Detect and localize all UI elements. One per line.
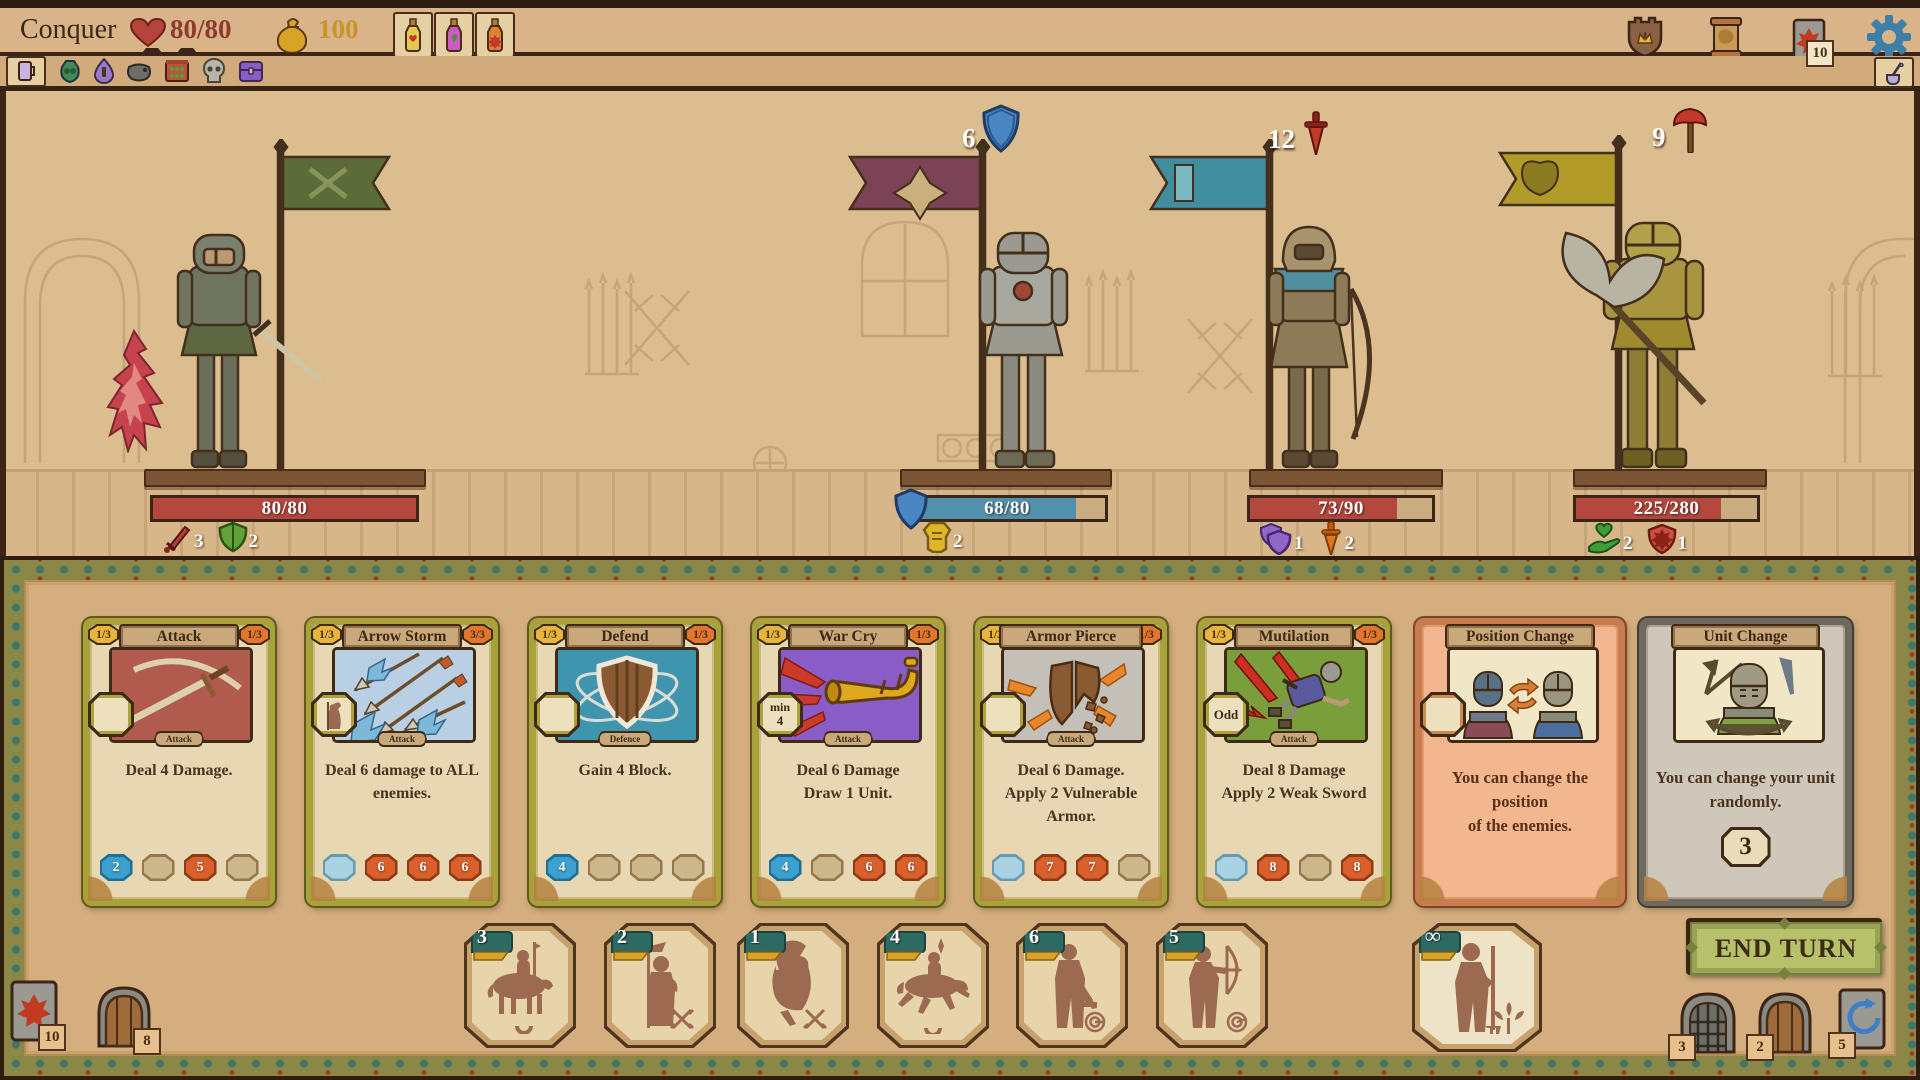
card-title: Attack	[119, 624, 239, 649]
cost-slot	[142, 854, 175, 881]
damage-potion-icon	[484, 18, 506, 52]
card-corner-flourish	[1128, 867, 1162, 901]
card-type: Attack	[823, 731, 873, 747]
card-corner-flourish	[1351, 867, 1385, 901]
card-type: Attack	[1046, 731, 1096, 747]
unit-token-sword-cavalry[interactable]: 4	[877, 923, 989, 1048]
unit-heavy-axe-knight[interactable]	[1478, 135, 1768, 469]
status-regen: 2	[1586, 521, 1633, 555]
card-title: Armor Pierce	[999, 624, 1143, 649]
intent-value: 12	[1268, 124, 1295, 155]
card-mutilation[interactable]: 1/3 1/3 Mutilation Att	[1198, 618, 1390, 906]
card-condition-slot	[88, 692, 134, 737]
card-arrow-storm[interactable]: 1/3 3/3 Arrow Storm Attack	[306, 618, 498, 906]
orange-dagger-icon	[1318, 521, 1344, 555]
ladle-icon	[1883, 61, 1905, 85]
settings-gear-icon[interactable]	[1866, 14, 1912, 60]
frame-edge	[0, 91, 6, 556]
unit-requirement-icon	[324, 700, 344, 730]
tankard-slot[interactable]	[6, 56, 46, 87]
door-button-right[interactable]: 2	[1756, 990, 1814, 1059]
uses-left-badge: 3	[1721, 827, 1771, 867]
status-armor: 2	[922, 521, 963, 553]
card-text: Deal 6 DamageDraw 1 Unit.	[760, 759, 936, 805]
card-corner-flourish	[980, 867, 1014, 901]
hp-value: 80/80	[153, 498, 416, 519]
axe-icon	[1670, 107, 1710, 153]
health-heart-icon	[130, 18, 166, 48]
intent-attack: 12	[1268, 111, 1333, 155]
card-text: Deal 6 Damage.Apply 2 Vulnerable Armor.	[983, 759, 1159, 829]
card-title: Defend	[565, 624, 685, 649]
green-shield-icon	[218, 521, 248, 553]
card-corner-flourish	[905, 867, 939, 901]
cost-slot: 6	[853, 854, 886, 881]
card-text: Deal 4 Damage.	[91, 759, 267, 782]
elixir-drop-icon[interactable]	[94, 58, 114, 84]
cost-slot: 5	[184, 854, 217, 881]
dagger-icon	[1299, 111, 1333, 155]
unit-token-crossbowman[interactable]: 6	[1016, 923, 1128, 1048]
top-bar: Conquer 80/80 100	[0, 8, 1920, 56]
card-text: Gain 4 Block.	[537, 759, 713, 782]
unit-swap-art-icon	[1676, 650, 1822, 740]
status-thorns: 1	[1647, 523, 1688, 555]
card-count-badge: 1/3	[1354, 624, 1385, 645]
gold-pouch-icon	[276, 15, 310, 53]
cost-slot	[630, 854, 663, 881]
end-turn-label: END TURN	[1715, 934, 1858, 964]
cost-slot	[588, 854, 621, 881]
card-corner-flourish	[757, 867, 791, 901]
card-corner-flourish	[1203, 867, 1237, 901]
status-block: 2	[218, 521, 259, 553]
herb-bag-icon[interactable]	[58, 58, 82, 84]
redraw-button[interactable]: 5	[1838, 988, 1886, 1057]
card-condition-slot: Odd	[1203, 692, 1249, 737]
card-corner-flourish	[682, 867, 716, 901]
card-count-badge: 1/3	[311, 624, 342, 645]
gate-button[interactable]: 3	[1678, 990, 1738, 1059]
unit-token-spearman[interactable]: 2	[604, 923, 716, 1048]
card-corner-flourish	[1813, 867, 1847, 901]
card-count-badge: 1/3	[685, 624, 716, 645]
card-type: Defence	[598, 731, 652, 747]
card-count-badge: 1/3	[757, 624, 788, 645]
card-corner-flourish	[459, 867, 493, 901]
card-corner-flourish	[1420, 867, 1454, 901]
cost-slot: 7	[1034, 854, 1067, 881]
swap-knights-art-icon	[1450, 650, 1596, 740]
card-count-badge: 1/3	[534, 624, 565, 645]
card-count-badge: 1/3	[239, 624, 270, 645]
card-text: You can change your unitrandomly.	[1647, 766, 1844, 814]
status-row-unit3: 1 2	[1259, 521, 1354, 555]
status-value: 2	[249, 531, 259, 553]
card-attack[interactable]: 1/3 1/3 Attack Attack Deal 4 Damage. 2 5	[83, 618, 275, 906]
consumables-bar	[0, 56, 1920, 91]
hp-bar-unit3: 73/90	[1247, 495, 1435, 522]
top-dark-strip	[0, 0, 1920, 8]
cauldron-icon[interactable]	[126, 59, 152, 83]
card-corner-flourish	[534, 867, 568, 901]
status-row-unit1: 3 2	[163, 521, 258, 553]
scroll-icon[interactable]	[1709, 16, 1743, 60]
unit-platform	[1573, 469, 1767, 487]
unit-token-shield-knight[interactable]: 1	[737, 923, 849, 1048]
card-war-cry[interactable]: 1/3 1/3 War Cry Attack min 4 Deal 6	[752, 618, 944, 906]
card-title: Mutilation	[1234, 624, 1354, 649]
card-unit-requirement-slot	[311, 692, 357, 737]
deck-count-badge: 10	[1806, 40, 1834, 67]
magic-potion-icon	[443, 18, 465, 52]
game-root: Conquer 80/80 100	[0, 0, 1920, 1080]
unit-platform	[144, 469, 426, 487]
armor-icon	[922, 521, 952, 553]
unit-plate-knight[interactable]	[840, 139, 1110, 469]
card-condition-slot	[534, 692, 580, 737]
door-count-badge: 8	[133, 1028, 161, 1055]
card-corner-flourish	[236, 867, 270, 901]
card-type: Attack	[377, 731, 427, 747]
card-text: You can change the positionof the enemie…	[1423, 766, 1617, 838]
card-type: Attack	[1269, 731, 1319, 747]
unit-hooded-archer[interactable]	[1145, 139, 1415, 469]
card-text: Deal 8 DamageApply 2 Weak Sword	[1206, 759, 1382, 805]
card-count-badge: 1/3	[908, 624, 939, 645]
card-title: Position Change	[1445, 624, 1595, 649]
card-position-change[interactable]: Position Change	[1415, 618, 1625, 906]
player-hp: 80/80	[170, 14, 232, 45]
card-title: Unit Change	[1671, 624, 1820, 649]
skull-icon[interactable]	[202, 58, 226, 84]
status-row-unit2: 2	[922, 521, 963, 553]
potion-shelf-icon[interactable]	[164, 58, 190, 84]
unit-token-archer[interactable]: 5	[1156, 923, 1268, 1048]
status-value: 2	[953, 531, 963, 553]
status-value: 1	[1678, 533, 1688, 555]
card-condition-slot: min 4	[757, 692, 803, 737]
card-title: War Cry	[788, 624, 908, 649]
unit-swordsman[interactable]	[150, 139, 410, 469]
status-value: 1	[1294, 533, 1304, 555]
cost-slot: 6	[407, 854, 440, 881]
unit-token-peasant-infinite[interactable]: ∞	[1412, 923, 1542, 1052]
status-value: 3	[194, 531, 204, 553]
card-armor-pierce[interactable]: 1/3 1/3 Armor Pierce Attack Deal 6 Damag…	[975, 618, 1167, 906]
intent-block: 6	[962, 104, 1022, 154]
status-row-unit4: 2 1	[1586, 521, 1687, 555]
page-title: Conquer	[20, 14, 116, 46]
crown-shield-icon[interactable]	[1626, 16, 1664, 58]
card-art	[1447, 647, 1599, 743]
magic-potion-slot[interactable]	[434, 12, 474, 58]
chest-icon[interactable]	[238, 59, 264, 83]
card-condition-slot	[980, 692, 1026, 737]
frame-edge	[1914, 91, 1920, 556]
cost-slot: 8	[1257, 854, 1290, 881]
status-value: 2	[1345, 533, 1355, 555]
card-art	[1673, 647, 1825, 743]
status-sword: 3	[163, 523, 204, 553]
player-gold: 100	[318, 14, 359, 45]
draw-deck-button[interactable]: 10	[10, 980, 58, 1049]
cost-slot: 6	[365, 854, 398, 881]
end-turn-button[interactable]: END TURN	[1686, 918, 1882, 975]
unit-token-lancer[interactable]: 3	[464, 923, 576, 1048]
sword-icon	[163, 523, 193, 553]
health-potion-slot[interactable]	[393, 12, 433, 58]
purple-shield-icon	[1259, 523, 1293, 555]
door-button-left[interactable]: 8	[95, 984, 153, 1053]
hp-bar-unit4: 225/280	[1573, 495, 1760, 522]
red-shield-icon	[1647, 523, 1677, 555]
card-corner-flourish	[311, 867, 345, 901]
hp-bar-unit2: 68/80	[906, 495, 1108, 522]
draw-count-badge: 10	[38, 1024, 66, 1051]
cost-slot	[1299, 854, 1332, 881]
card-unit-change[interactable]: Unit Change You can change your unitrand…	[1639, 618, 1852, 906]
intent-value: 6	[962, 123, 976, 154]
card-title: Arrow Storm	[342, 624, 462, 649]
door-count-badge: 2	[1746, 1034, 1774, 1061]
unit-platform	[1249, 469, 1443, 487]
ladle-slot[interactable]	[1874, 57, 1914, 88]
hp-value: 68/80	[909, 498, 1105, 519]
block-shield-icon	[980, 104, 1022, 154]
tankard-icon	[17, 60, 35, 82]
hp-value: 73/90	[1250, 498, 1432, 519]
status-value: 2	[1623, 533, 1633, 555]
consumable-items	[6, 57, 264, 85]
card-corner-flourish	[1644, 867, 1678, 901]
intent-value: 9	[1652, 122, 1666, 153]
redraw-count-badge: 5	[1828, 1032, 1856, 1059]
unit-platform	[900, 469, 1112, 487]
cost-slot	[811, 854, 844, 881]
hp-value: 225/280	[1576, 498, 1757, 519]
damage-potion-slot[interactable]	[475, 12, 515, 58]
gate-count-badge: 3	[1668, 1034, 1696, 1061]
card-corner-flourish	[1586, 867, 1620, 901]
battlefield: 6 12 9 80/80	[0, 91, 1920, 556]
card-type: Attack	[154, 731, 204, 747]
status-shield: 1	[1259, 523, 1304, 555]
hp-bar-unit1: 80/80	[150, 495, 419, 522]
card-defend[interactable]: 1/3 1/3 Defend Defence Gain 4 Block. 4	[529, 618, 721, 906]
card-count-badge: 3/3	[462, 624, 493, 645]
card-corner-flourish	[88, 867, 122, 901]
regen-hand-icon	[1586, 521, 1622, 555]
status-dagger: 2	[1318, 521, 1355, 555]
card-count-badge: 1/3	[88, 624, 119, 645]
cost-slot: 7	[1076, 854, 1109, 881]
card-count-badge: 1/3	[1203, 624, 1234, 645]
health-potion-icon	[402, 18, 424, 52]
card-condition-slot	[1420, 692, 1466, 737]
intent-attack: 9	[1652, 107, 1710, 153]
card-text: Deal 6 damage to ALLenemies.	[314, 759, 490, 805]
